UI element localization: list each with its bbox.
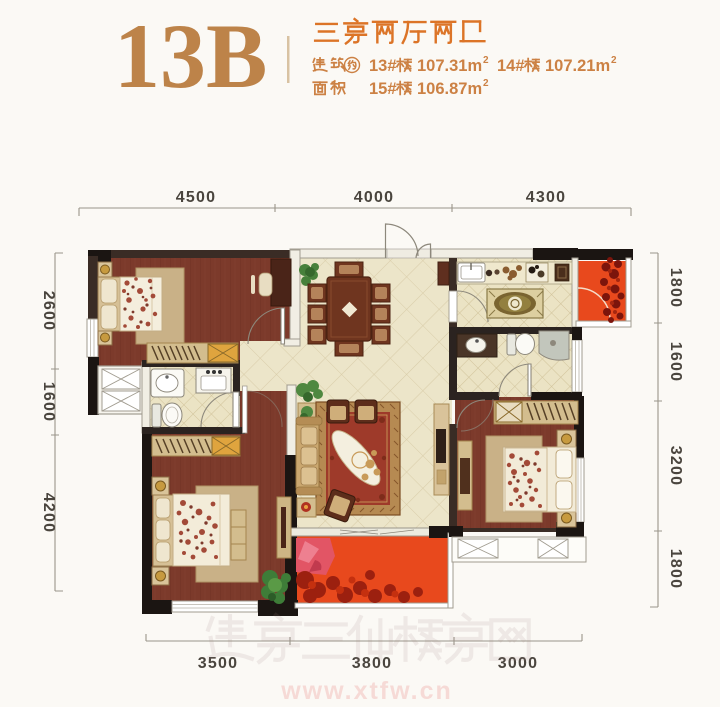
svg-text:3200: 3200 xyxy=(667,446,684,486)
svg-text:4300: 4300 xyxy=(526,189,566,206)
svg-text:2: 2 xyxy=(483,78,489,89)
svg-text:1600: 1600 xyxy=(40,382,57,422)
svg-text:2: 2 xyxy=(611,55,617,66)
svg-text:4200: 4200 xyxy=(40,493,57,533)
svg-text:2: 2 xyxy=(483,55,489,66)
svg-text:4000: 4000 xyxy=(354,189,394,206)
svg-text:106.87m: 106.87m xyxy=(417,80,482,98)
svg-text:13#: 13# xyxy=(369,57,397,75)
svg-text:1600: 1600 xyxy=(667,342,684,382)
svg-text:107.31m: 107.31m xyxy=(417,57,482,75)
svg-text:2600: 2600 xyxy=(40,291,57,331)
svg-text:1800: 1800 xyxy=(667,268,684,308)
svg-text:3500: 3500 xyxy=(198,655,238,672)
svg-text:14#: 14# xyxy=(497,57,525,75)
svg-text:4500: 4500 xyxy=(176,189,216,206)
svg-text:107.21m: 107.21m xyxy=(545,57,610,75)
svg-text:15#: 15# xyxy=(369,80,397,98)
svg-text:13B: 13B xyxy=(114,5,267,107)
svg-text:1800: 1800 xyxy=(667,549,684,589)
svg-text:www.xtfw.cn: www.xtfw.cn xyxy=(280,677,453,705)
